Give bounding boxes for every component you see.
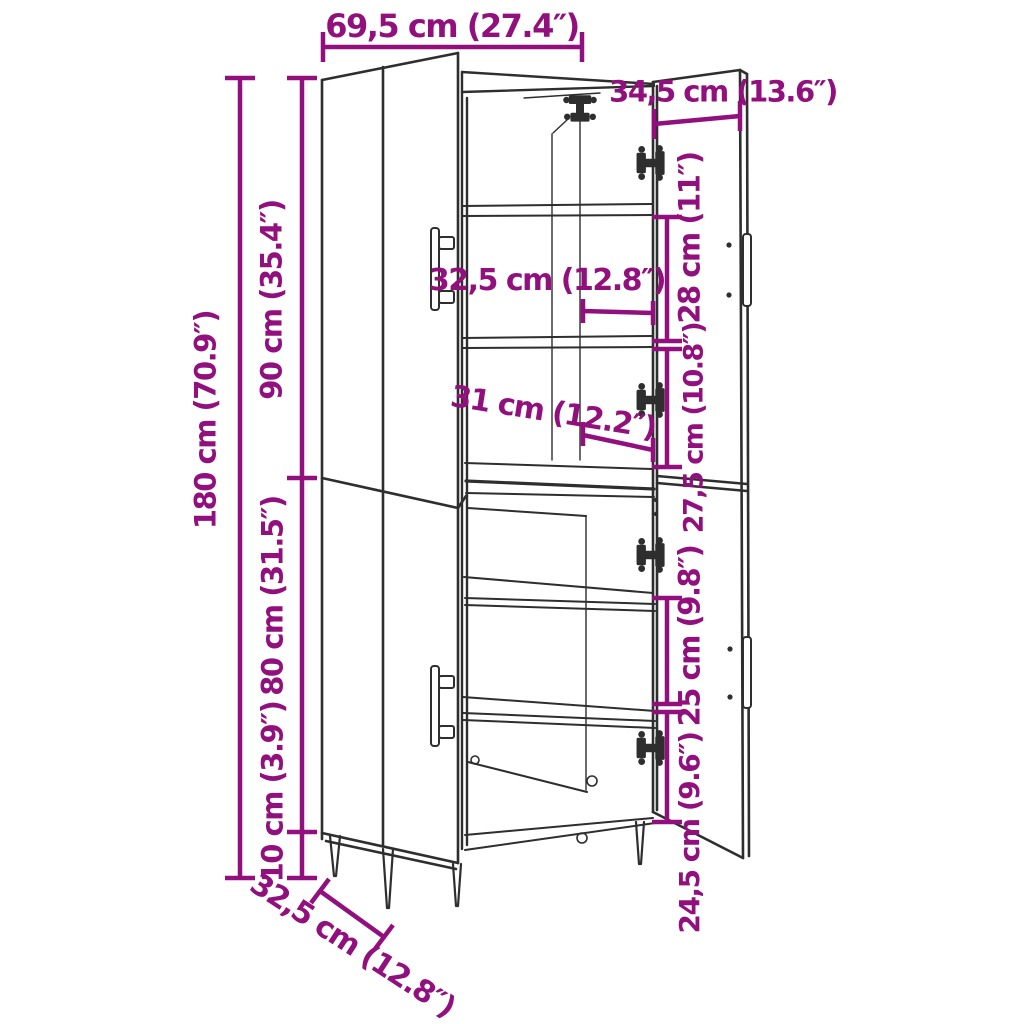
dim-label-width-top: 69,5 cm (27.4″) [325,10,579,42]
dim-line-inner-width-upper [583,299,653,325]
dim-label-height-lower: 80 cm (31.5″) [259,496,288,695]
dim-label-height-total: 180 cm (70.9″) [192,311,221,529]
dim-label-compartment-bottom: 24,5 cm (9.6″) [676,732,704,933]
dim-label-compartment-upper-mid: 27,5 cm (10.8″) [681,323,708,533]
interior-shelves [463,204,655,850]
back-panel-lines [524,93,600,790]
dim-label-compartment-lower-mid: 25 cm (9.8″) [676,546,705,727]
left-doors-closed [322,53,466,869]
dim-line-height-total [225,78,255,878]
cabinet-line-drawing [0,0,1024,1024]
dim-line-height-sections [287,78,317,878]
dim-label-compartment-top: 28 cm (11″) [676,152,705,323]
dim-label-height-legs: 10 cm (3.9″) [259,702,288,883]
dim-label-inner-width-upper: 32,5 cm (12.8″) [429,266,665,296]
cabinet-legs [330,822,644,908]
dim-label-height-upper: 90 cm (35.4″) [258,200,287,399]
cam-lock-icon [471,756,597,843]
dimension-diagram: 69,5 cm (27.4″) 34,5 cm (13.6″) 180 cm (… [0,0,1024,1024]
carcass-opening [462,72,654,849]
dim-label-door-width: 34,5 cm (13.6″) [609,78,837,107]
